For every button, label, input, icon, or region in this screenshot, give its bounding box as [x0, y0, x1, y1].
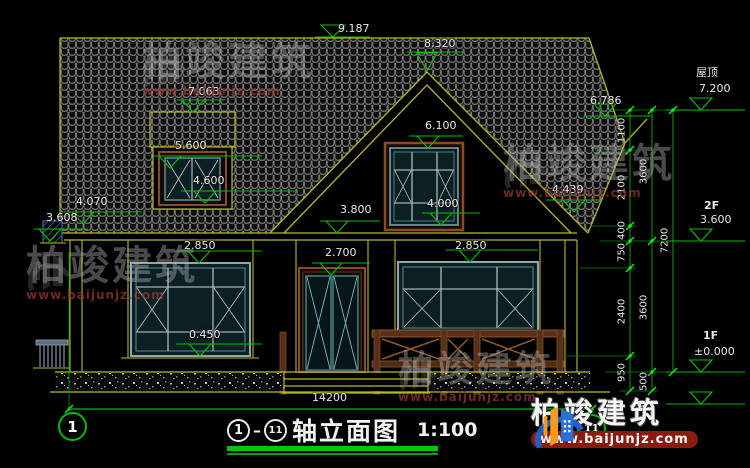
axis-number-11: 11 — [584, 422, 599, 435]
elevation-drawing — [0, 0, 750, 468]
drawing-title: 1 – 11 轴立面图 1:100 — [227, 412, 478, 448]
level-label-gable-peak: 8.320 — [424, 38, 456, 50]
level-label-ridge: 9.187 — [338, 23, 370, 35]
dim-1100: 1100 — [617, 113, 628, 149]
floor-label-roof: 屋顶 — [696, 67, 718, 79]
level-label-left-eave: 4.070 — [76, 196, 108, 208]
level-label-sill-1f: 0.450 — [189, 329, 221, 341]
level-label-dormer-win-top: 5.600 — [175, 140, 207, 152]
level-label-right-eave: 6.786 — [590, 95, 622, 107]
dim-total-width: 14200 — [312, 392, 347, 404]
floor-label-1f: 1F — [703, 330, 718, 342]
title-axis-start-bubble: 1 — [227, 419, 250, 442]
gable-window — [385, 143, 463, 230]
level-label-win2-top: 2.850 — [455, 240, 487, 252]
title-underline-thin — [227, 453, 438, 455]
title-axis-end-bubble: 11 — [264, 419, 287, 442]
dim-500: 500 — [639, 364, 650, 400]
dim-7200: 7200 — [660, 223, 671, 259]
axis-number-1: 1 — [67, 418, 77, 436]
dim-2400: 2400 — [617, 294, 628, 330]
title-underline-thick — [227, 446, 438, 451]
cad-elevation-canvas: 9.187 8.320 7.063 5.600 4.600 4.070 3.60… — [0, 0, 750, 468]
dim-950: 950 — [617, 355, 628, 391]
title-axis-start: 1 — [234, 423, 243, 438]
level-label-left-low: 3.608 — [46, 212, 78, 224]
level-label-gable-win-top: 6.100 — [425, 120, 457, 132]
ground-plinth — [50, 372, 610, 393]
title-axis-end: 11 — [269, 425, 283, 436]
dim-3600-lower: 3600 — [639, 290, 650, 326]
dim-2100: 2100 — [617, 170, 628, 206]
dim-750: 750 — [617, 235, 628, 271]
axis-bubble-1: 1 — [58, 412, 87, 441]
entry-door — [299, 268, 365, 372]
floor-level-roof: 7.200 — [699, 83, 731, 95]
side-structure — [40, 221, 66, 243]
title-text: 轴立面图 — [292, 412, 400, 448]
level-label-dormer-sill: 4.600 — [193, 175, 225, 187]
floor-label-2f: 2F — [704, 200, 719, 212]
floor-level-2f: 3.600 — [700, 214, 732, 226]
title-dash: – — [253, 421, 261, 440]
level-label-eave-2f: 3.800 — [340, 204, 372, 216]
left-side-railing — [33, 340, 70, 368]
level-label-door-top: 2.700 — [325, 247, 357, 259]
scale-text: 1:100 — [417, 419, 477, 441]
axis-bubble-11: 11 — [577, 414, 606, 443]
level-label-win1-top: 2.850 — [184, 240, 216, 252]
right-window — [398, 262, 538, 333]
floor-level-1f: ±0.000 — [694, 346, 735, 358]
level-label-gable-sill: 4.000 — [427, 198, 459, 210]
level-label-dormer-top: 7.063 — [188, 86, 220, 98]
dim-3600-upper: 3600 — [639, 154, 650, 190]
left-window — [131, 263, 250, 356]
level-label-right-eave2: 4.439 — [552, 184, 584, 196]
